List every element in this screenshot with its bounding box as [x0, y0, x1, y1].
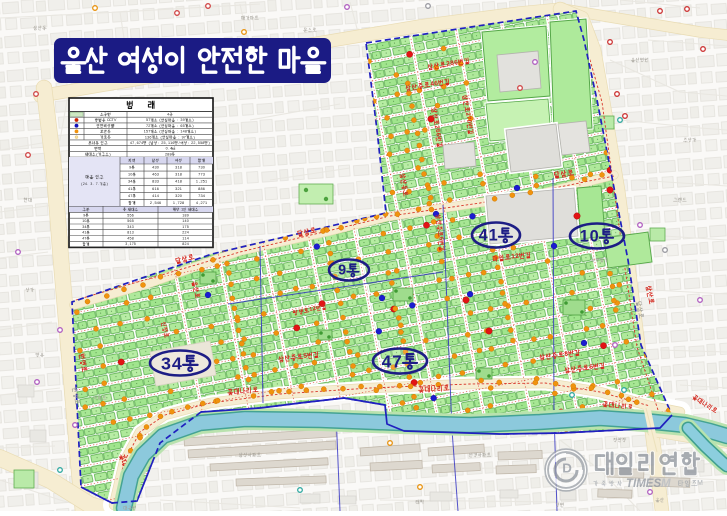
svg-text:4: 4 — [157, 194, 159, 198]
svg-text:0: 0 — [84, 219, 86, 223]
svg-text::: : — [178, 135, 179, 139]
svg-text:7: 7 — [148, 118, 150, 122]
svg-text:1: 1 — [196, 180, 198, 184]
svg-text:8: 8 — [182, 201, 184, 205]
svg-text:4: 4 — [479, 227, 488, 245]
svg-text:.: . — [87, 182, 88, 186]
svg-text:): ) — [193, 135, 194, 139]
svg-text:0: 0 — [187, 219, 189, 223]
svg-text:7: 7 — [130, 194, 132, 198]
svg-text:8: 8 — [185, 130, 187, 134]
svg-text:): ) — [195, 130, 196, 134]
svg-text:3: 3 — [161, 354, 171, 374]
svg-text:9: 9 — [83, 213, 85, 217]
svg-text:9: 9 — [129, 166, 131, 170]
svg-text::: : — [177, 124, 178, 128]
svg-text:1: 1 — [489, 227, 498, 245]
svg-text:3: 3 — [203, 173, 205, 177]
svg-text:9: 9 — [338, 263, 346, 279]
svg-text:6: 6 — [149, 135, 151, 139]
svg-text:6: 6 — [132, 213, 134, 217]
svg-text:M: M — [697, 480, 703, 487]
svg-text:6: 6 — [157, 187, 159, 191]
svg-text:6: 6 — [159, 201, 161, 205]
svg-text:.: . — [93, 182, 94, 186]
svg-text:8: 8 — [180, 173, 182, 177]
svg-text:6: 6 — [203, 187, 205, 191]
svg-text:0: 0 — [180, 194, 182, 198]
svg-text:2: 2 — [148, 124, 150, 128]
svg-text:4: 4 — [187, 242, 189, 246]
svg-text:3: 3 — [132, 225, 134, 229]
svg-text:㎢: ㎢ — [171, 146, 175, 151]
svg-text:0: 0 — [590, 228, 599, 246]
svg-text:1: 1 — [205, 180, 207, 184]
svg-text:1: 1 — [173, 201, 175, 205]
svg-text:4: 4 — [187, 236, 189, 240]
svg-text:4: 4 — [141, 141, 143, 145]
svg-text:1: 1 — [205, 201, 207, 205]
svg-text:8: 8 — [202, 141, 204, 145]
svg-text::: : — [158, 141, 159, 145]
svg-text:4: 4 — [382, 352, 392, 372]
svg-text:9: 9 — [183, 118, 185, 122]
svg-text:1: 1 — [130, 187, 132, 191]
svg-text:7: 7 — [84, 236, 86, 240]
svg-text::: : — [177, 130, 178, 134]
svg-text:4: 4 — [167, 113, 169, 117]
svg-text:5: 5 — [187, 225, 189, 229]
svg-text:7: 7 — [184, 135, 186, 139]
svg-text:8: 8 — [132, 236, 134, 240]
svg-text:): ) — [208, 141, 209, 145]
svg-text:7: 7 — [392, 352, 402, 372]
svg-text:5: 5 — [134, 242, 136, 246]
svg-text:): ) — [107, 182, 108, 186]
svg-text:8: 8 — [180, 166, 182, 170]
svg-text:.: . — [98, 182, 99, 186]
svg-text:8: 8 — [169, 152, 171, 156]
svg-text:4: 4 — [187, 231, 189, 235]
svg-text:D: D — [562, 461, 572, 476]
svg-text:8: 8 — [180, 180, 182, 184]
svg-text:3: 3 — [132, 231, 134, 235]
svg-text:1: 1 — [84, 231, 86, 235]
svg-text:M: M — [661, 478, 671, 490]
svg-text:6: 6 — [172, 141, 174, 145]
svg-text:3: 3 — [157, 173, 159, 177]
svg-text:2: 2 — [150, 201, 152, 205]
svg-text:9: 9 — [187, 213, 189, 217]
svg-text:4: 4 — [130, 180, 132, 184]
svg-text:0: 0 — [203, 166, 205, 170]
svg-text:TIMES: TIMES — [626, 478, 661, 490]
svg-text:): ) — [192, 124, 193, 128]
svg-text:): ) — [192, 118, 193, 122]
svg-text:0: 0 — [130, 173, 132, 177]
svg-text:5: 5 — [183, 124, 185, 128]
svg-text::: : — [188, 141, 189, 145]
svg-text:4: 4 — [203, 194, 205, 198]
svg-text:1: 1 — [181, 208, 183, 212]
svg-text:4: 4 — [172, 354, 182, 374]
svg-text::: : — [177, 118, 178, 122]
svg-text:4: 4 — [84, 225, 86, 229]
svg-text:3: 3 — [157, 180, 159, 184]
svg-text:1: 1 — [580, 228, 589, 246]
svg-text:5: 5 — [132, 219, 134, 223]
svg-text:0: 0 — [157, 166, 159, 170]
svg-text:4: 4 — [196, 201, 198, 205]
svg-text:1: 1 — [180, 187, 182, 191]
svg-text:7: 7 — [148, 130, 150, 134]
